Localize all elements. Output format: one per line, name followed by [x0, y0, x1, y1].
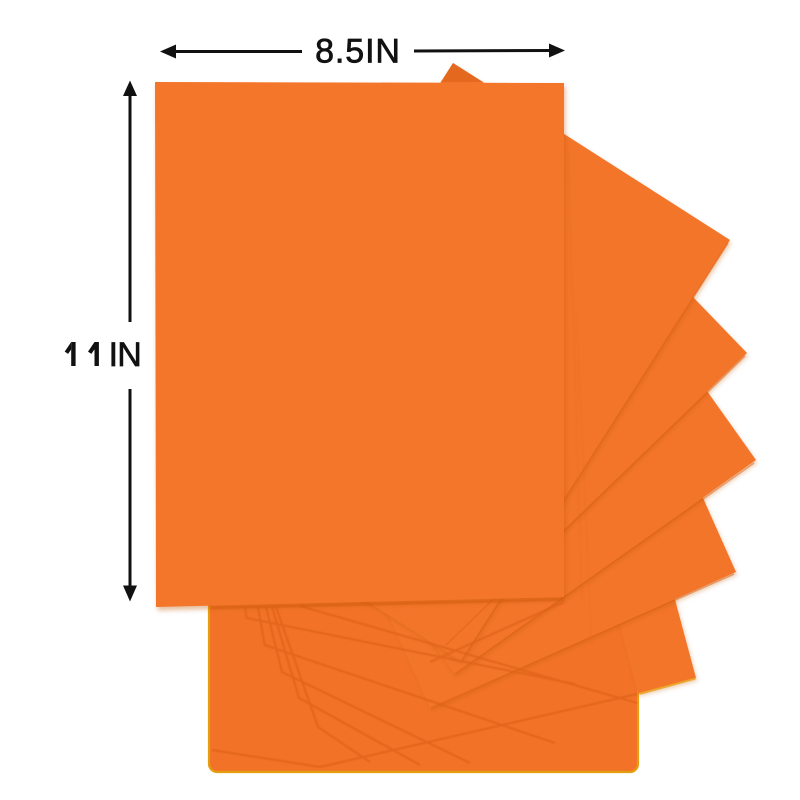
svg-text:8.5IN: 8.5IN: [315, 33, 401, 71]
svg-text:IN: IN: [109, 336, 141, 374]
